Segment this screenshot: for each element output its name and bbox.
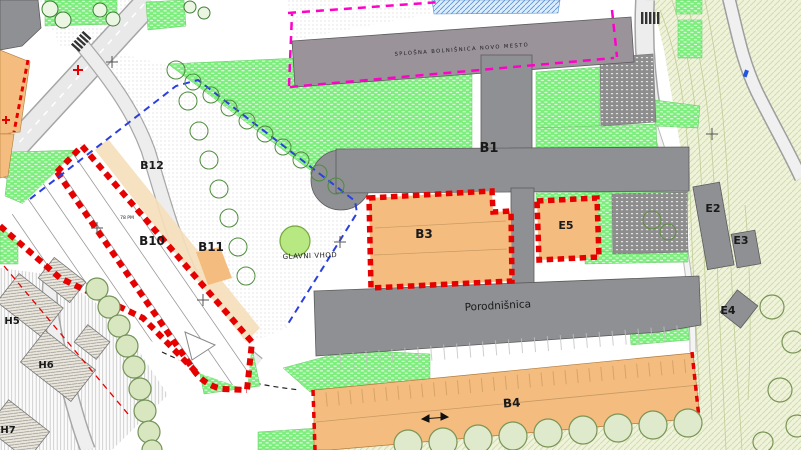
label-b10: B10 <box>139 234 165 248</box>
label-e2: E2 <box>705 202 720 215</box>
site-plan-canvas: B1 B3 E5 B4 B10 B11 B12 E2 E3 E4 H5 H6 H… <box>0 0 801 450</box>
label-b11: B11 <box>198 240 224 254</box>
label-e3: E3 <box>733 234 748 247</box>
label-parking-capacity: 78 PM <box>120 215 134 221</box>
label-b1: B1 <box>480 141 499 156</box>
label-e4: E4 <box>720 304 736 317</box>
site-plan-map: B1 B3 E5 B4 B10 B11 B12 E2 E3 E4 H5 H6 H… <box>0 0 801 450</box>
label-b3: B3 <box>415 227 433 241</box>
label-b12: B12 <box>140 159 164 172</box>
label-h6: H6 <box>38 360 53 371</box>
building-b1-connector <box>511 188 534 292</box>
blue-hatch-strip <box>432 0 560 14</box>
label-h7: H7 <box>0 425 15 436</box>
label-e5: E5 <box>558 219 573 232</box>
label-b4: B4 <box>503 395 521 410</box>
zone-b3 <box>369 191 512 288</box>
label-h5: H5 <box>4 316 19 327</box>
building-b1-main-wing <box>336 147 689 193</box>
